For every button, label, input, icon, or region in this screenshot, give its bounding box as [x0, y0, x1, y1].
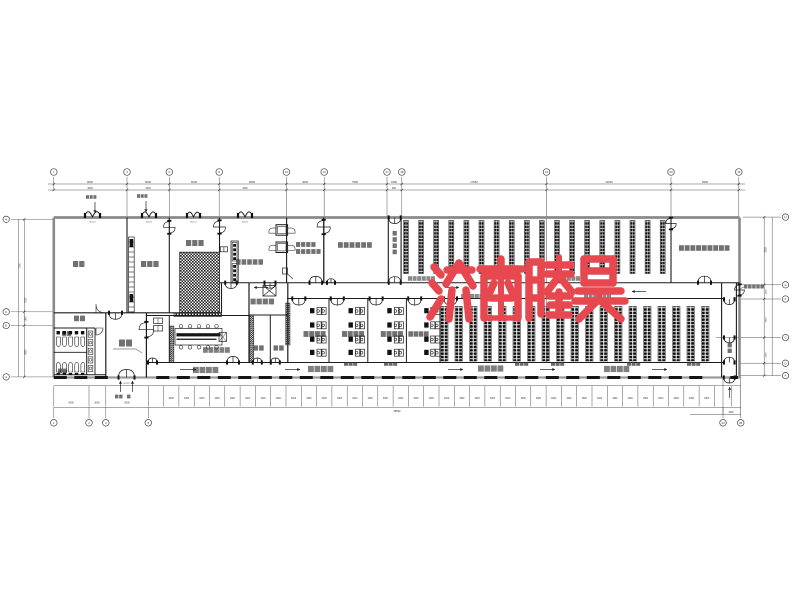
svg-text:3000: 3000	[728, 412, 734, 414]
svg-text:33: 33	[737, 170, 741, 174]
svg-text:14600: 14600	[605, 180, 613, 184]
svg-text:2000: 2000	[628, 398, 634, 400]
svg-text:4300: 4300	[68, 402, 74, 405]
svg-text:48592: 48592	[393, 409, 401, 413]
svg-text:2000: 2000	[352, 398, 358, 400]
svg-text:1800: 1800	[429, 398, 435, 400]
svg-text:D: D	[5, 324, 7, 328]
svg-text:2000: 2000	[658, 398, 664, 400]
svg-text:5000: 5000	[26, 297, 28, 303]
svg-text:1500: 1500	[145, 187, 151, 190]
svg-text:1800: 1800	[643, 398, 649, 400]
svg-text:2000: 2000	[536, 398, 542, 400]
svg-text:A: A	[785, 374, 787, 378]
svg-text:1800: 1800	[391, 180, 397, 184]
svg-text:2000: 2000	[475, 398, 481, 400]
svg-text:7200: 7200	[19, 263, 22, 269]
svg-text:1800: 1800	[184, 398, 190, 400]
svg-text:21: 21	[545, 170, 549, 174]
svg-text:2000: 2000	[322, 398, 328, 400]
svg-text:17: 17	[385, 170, 389, 174]
svg-text:C: C	[784, 336, 786, 340]
svg-text:2000: 2000	[444, 398, 450, 400]
svg-text:8300: 8300	[702, 180, 708, 184]
svg-text:1800: 1800	[459, 398, 465, 400]
svg-text:1800: 1800	[490, 398, 496, 400]
svg-text:3850: 3850	[766, 317, 768, 323]
svg-text:2000: 2000	[94, 402, 100, 405]
svg-text:900: 900	[392, 187, 397, 190]
svg-text:1800: 1800	[245, 398, 251, 400]
svg-text:2000: 2000	[383, 398, 389, 400]
svg-text:2000: 2000	[689, 398, 695, 400]
svg-text:D: D	[784, 361, 786, 365]
svg-text:3600: 3600	[87, 187, 93, 190]
svg-text:H: H	[784, 215, 786, 219]
svg-text:1500: 1500	[242, 187, 248, 190]
svg-text:7500: 7500	[765, 247, 768, 253]
svg-text:4550: 4550	[26, 349, 28, 355]
svg-text:2000: 2000	[597, 398, 603, 400]
svg-text:2000: 2000	[260, 398, 266, 400]
svg-text:M1521: M1521	[242, 221, 249, 223]
svg-text:9600: 9600	[87, 180, 93, 184]
svg-text:1800: 1800	[521, 398, 527, 400]
svg-text:1800: 1800	[704, 398, 710, 400]
svg-text:2600: 2600	[766, 352, 768, 358]
svg-text:1800: 1800	[215, 398, 221, 400]
svg-text:8000: 8000	[249, 180, 255, 184]
svg-text:1800: 1800	[337, 398, 343, 400]
svg-text:2000: 2000	[230, 398, 236, 400]
svg-text:4000: 4000	[302, 180, 308, 184]
svg-text:M1521: M1521	[89, 221, 96, 223]
svg-text:5000: 5000	[124, 402, 130, 405]
svg-text:H: H	[5, 217, 7, 221]
svg-text:29: 29	[669, 170, 673, 174]
svg-text:1800: 1800	[368, 398, 374, 400]
svg-text:A: A	[5, 375, 7, 379]
svg-text:34: 34	[721, 421, 725, 425]
svg-text:2000: 2000	[566, 398, 572, 400]
svg-text:2000: 2000	[169, 398, 175, 400]
svg-text:12: 12	[285, 170, 289, 174]
svg-text:5000: 5000	[145, 180, 151, 184]
svg-text:K: K	[5, 310, 7, 314]
svg-text:F: F	[785, 297, 787, 301]
svg-text:1800: 1800	[398, 398, 404, 400]
svg-text:1800: 1800	[276, 398, 282, 400]
svg-text:18: 18	[400, 170, 404, 174]
svg-text:17052: 17052	[470, 180, 478, 184]
svg-text:1800: 1800	[612, 398, 618, 400]
svg-text:2000: 2000	[413, 398, 419, 400]
svg-text:1800: 1800	[674, 398, 680, 400]
svg-text:M1521: M1521	[146, 221, 153, 223]
svg-text:2000: 2000	[505, 398, 511, 400]
svg-text:2000: 2000	[291, 398, 297, 400]
svg-text:1800: 1800	[551, 398, 557, 400]
svg-text:35: 35	[739, 421, 743, 425]
svg-text:14: 14	[323, 170, 327, 174]
svg-text:1800: 1800	[306, 398, 312, 400]
svg-text:7500: 7500	[352, 180, 358, 184]
svg-text:M1824: M1824	[123, 383, 130, 385]
svg-text:2000: 2000	[199, 398, 205, 400]
svg-text:1500: 1500	[766, 289, 768, 295]
svg-text:1800: 1800	[582, 398, 588, 400]
svg-text:1400: 1400	[26, 316, 28, 322]
svg-text:M1521: M1521	[190, 221, 197, 223]
svg-text:6000: 6000	[191, 180, 197, 184]
